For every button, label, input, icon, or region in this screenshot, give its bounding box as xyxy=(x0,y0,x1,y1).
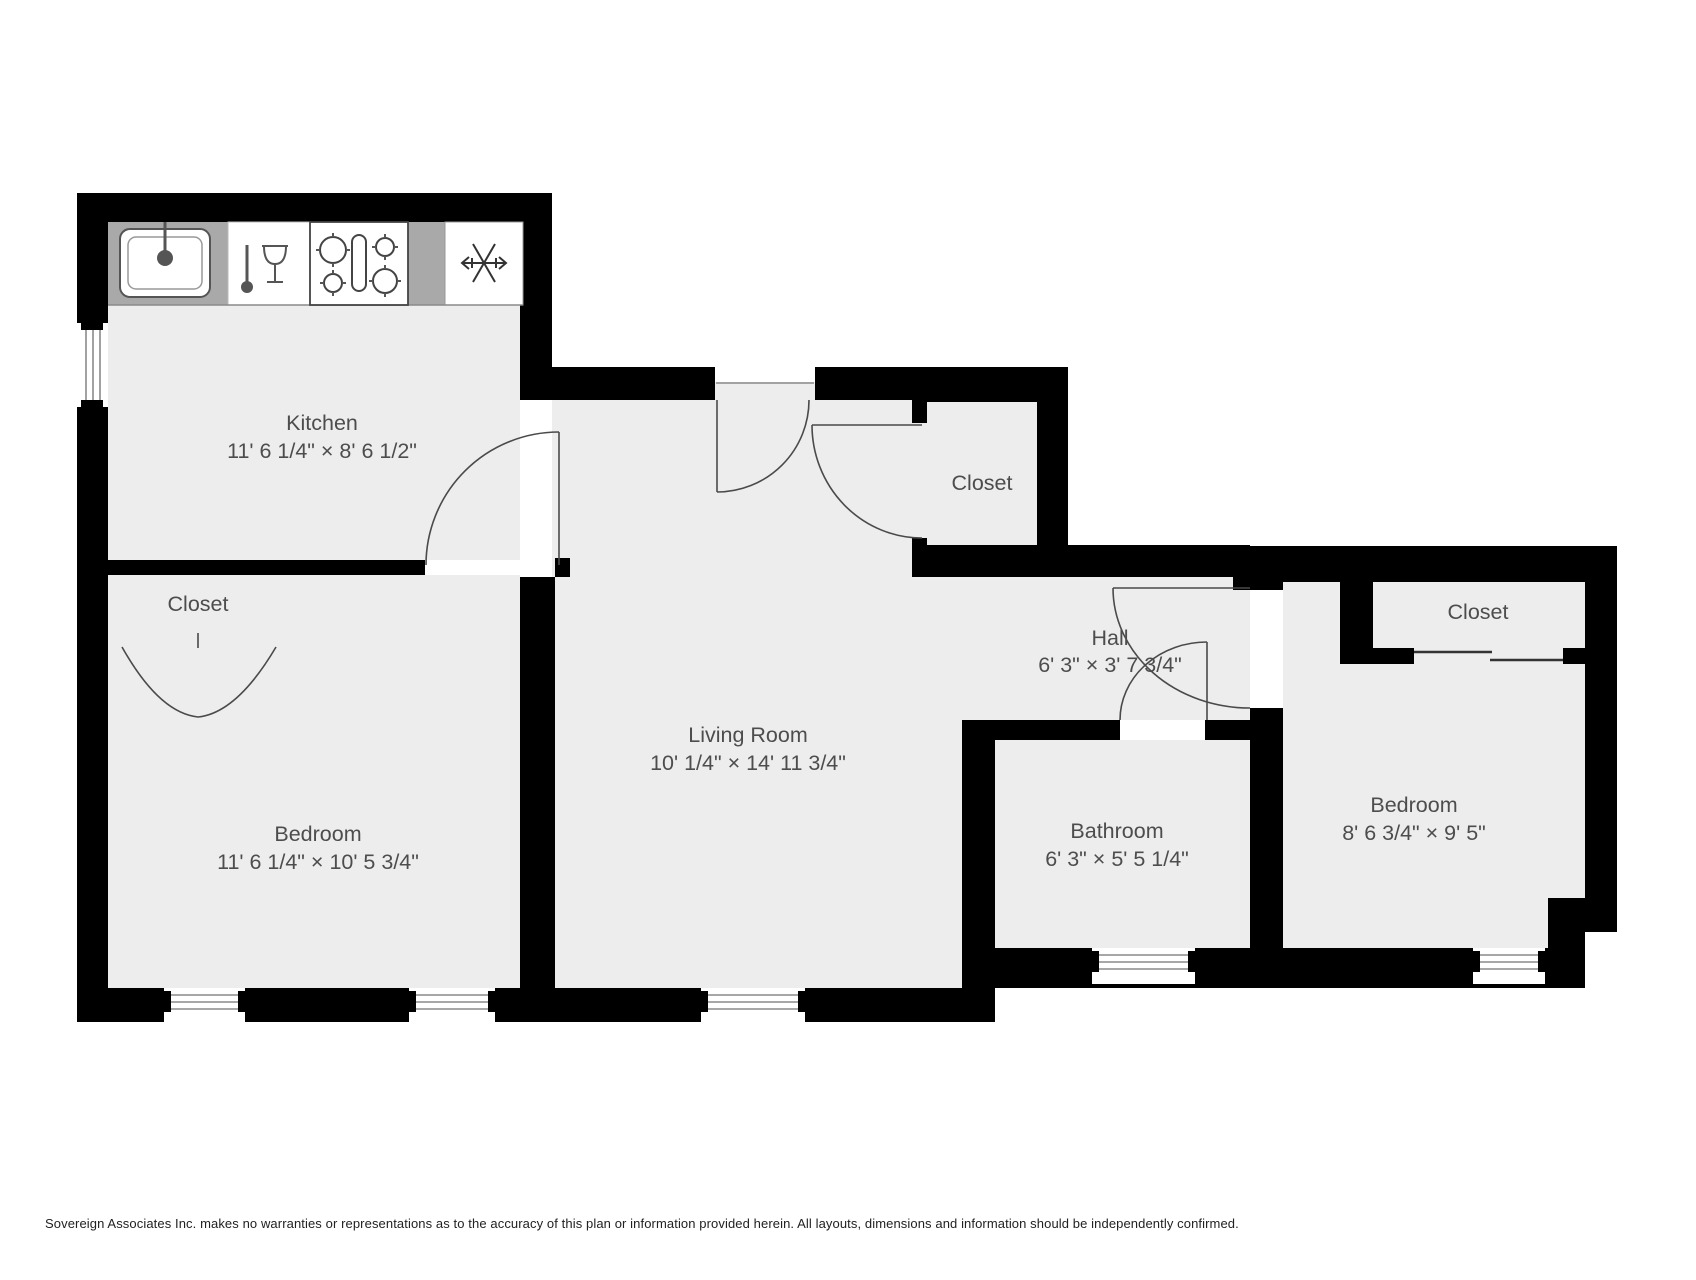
floor-plan-drawing: Kitchen 11' 6 1/4" × 8' 6 1/2" Closet Be… xyxy=(0,0,1696,1280)
closet-top-right-label: Closet xyxy=(952,471,1013,495)
sink-icon xyxy=(120,222,210,297)
disclaimer-text: Sovereign Associates Inc. makes no warra… xyxy=(45,1216,1645,1231)
entry-threshold-floor xyxy=(715,382,815,400)
bedroom-right-dims: 8' 6 3/4" × 9' 5" xyxy=(1342,821,1486,845)
bathroom-dims: 6' 3" × 5' 5 1/4" xyxy=(1045,847,1189,871)
kitchen-label: Kitchen xyxy=(286,411,358,435)
bedroom-left-floor xyxy=(108,575,520,988)
living-room-label: Living Room xyxy=(688,723,808,747)
counter-gap-section xyxy=(408,222,445,305)
window-bedroom-left-2 xyxy=(409,988,495,1022)
window-kitchen-left xyxy=(77,323,108,407)
bedroom-right-label: Bedroom xyxy=(1370,793,1457,817)
floor-plan-page: Kitchen 11' 6 1/4" × 8' 6 1/2" Closet Be… xyxy=(0,0,1696,1280)
closet-left-label: Closet xyxy=(168,592,229,616)
window-bathroom xyxy=(1092,948,1195,984)
hall-label: Hall xyxy=(1091,626,1128,650)
living-room-dims: 10' 1/4" × 14' 11 3/4" xyxy=(650,751,846,775)
stove-icon xyxy=(310,222,408,305)
kitchen-dims: 11' 6 1/4" × 8' 6 1/2" xyxy=(227,439,417,463)
kitchen-fixtures xyxy=(108,222,523,305)
bedroom-left-dims: 11' 6 1/4" × 10' 5 3/4" xyxy=(217,850,419,874)
window-bedroom-left-1 xyxy=(164,988,245,1022)
window-bedroom-right xyxy=(1473,948,1545,984)
bathroom-floor xyxy=(995,740,1250,948)
hall-dims: 6' 3" × 3' 7 3/4" xyxy=(1038,653,1182,677)
dishwasher xyxy=(228,222,310,305)
closet-right-label: Closet xyxy=(1448,600,1509,624)
window-living-room xyxy=(701,988,805,1022)
bathroom-label: Bathroom xyxy=(1070,819,1163,843)
bedroom-left-label: Bedroom xyxy=(274,822,361,846)
